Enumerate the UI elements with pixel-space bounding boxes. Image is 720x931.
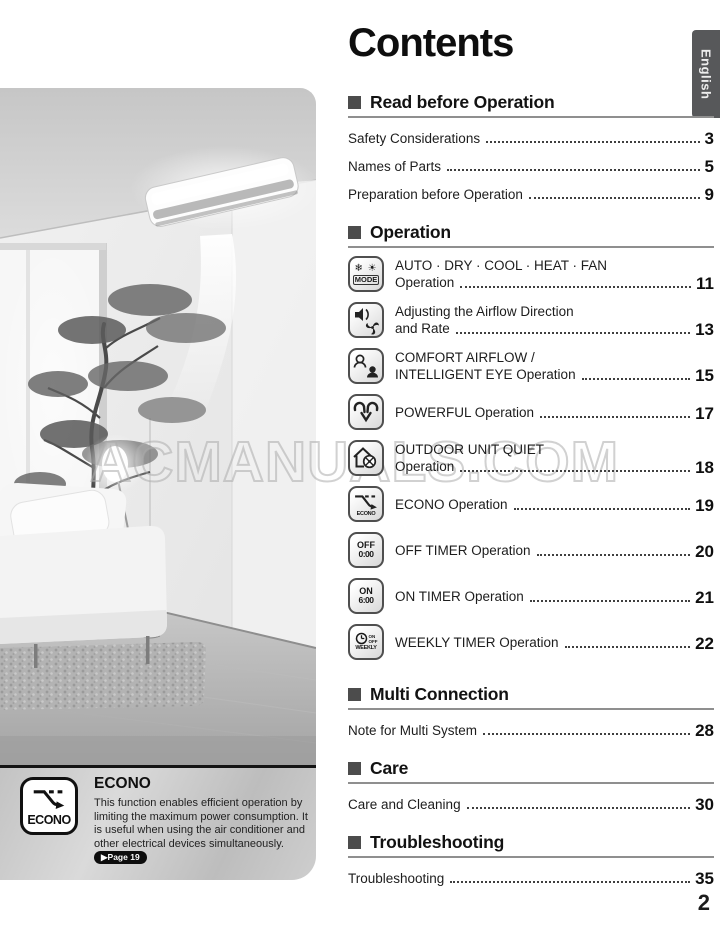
page-reference-badge[interactable]: ▶Page 19 (94, 851, 147, 864)
dot-leader (582, 378, 691, 380)
mode-icon: ❄ ☀ MODE (348, 256, 384, 292)
dot-leader (486, 141, 699, 143)
section-bullet-icon (348, 96, 361, 109)
dot-leader (450, 881, 690, 883)
comfort-eye-icon (348, 348, 384, 384)
toc-item[interactable]: ON OFF WEEKLY WEEKLY TIMER Operation22 (348, 624, 714, 660)
toc-item[interactable]: Adjusting the Airflow Direction and Rate… (348, 302, 714, 338)
section-header-care: Care (348, 758, 714, 784)
rug (0, 642, 206, 710)
table-of-contents: Contents Read before Operation Safety Co… (348, 20, 714, 916)
dot-leader (483, 733, 690, 735)
dot-leader (530, 600, 690, 602)
outdoor-quiet-icon (348, 440, 384, 476)
econo-icon-label: ECONO (27, 814, 70, 827)
section-header-read-before-operation: Read before Operation (348, 92, 714, 118)
econo-icon: ECONO (20, 777, 78, 835)
dot-leader (467, 807, 691, 809)
econo-panel-text: This function enables efficient operatio… (94, 797, 308, 850)
section-header-multi-connection: Multi Connection (348, 684, 714, 710)
powerful-icon (348, 394, 384, 430)
econo-icon: ECONO (348, 486, 384, 522)
clock-icon (355, 632, 368, 645)
toc-item[interactable]: Safety Considerations3 (348, 127, 714, 146)
toc-item[interactable]: Preparation before Operation9 (348, 183, 714, 202)
on-timer-icon: ON 6:00 (348, 578, 384, 614)
toc-item[interactable]: POWERFUL Operation17 (348, 394, 714, 430)
off-timer-icon: OFF 0:00 (348, 532, 384, 568)
toc-item[interactable]: Names of Parts5 (348, 155, 714, 174)
dot-leader (456, 332, 690, 334)
toc-item[interactable]: COMFORT AIRFLOW / INTELLIGENT EYE Operat… (348, 348, 714, 384)
weekly-timer-icon: ON OFF WEEKLY (348, 624, 384, 660)
dot-leader (447, 169, 700, 171)
section-bullet-icon (348, 762, 361, 775)
dot-leader (514, 508, 691, 510)
room-photo (0, 88, 316, 765)
section-header-troubleshooting: Troubleshooting (348, 832, 714, 858)
toc-item[interactable]: ❄ ☀ MODE AUTO · DRY · COOL · HEAT · FAN … (348, 256, 714, 292)
page-number: 2 (698, 890, 710, 916)
section-bullet-icon (348, 836, 361, 849)
toc-item[interactable]: OUTDOOR UNIT QUIET Operation18 (348, 440, 714, 476)
dot-leader (537, 554, 691, 556)
toc-item[interactable]: Troubleshooting35 (348, 867, 714, 886)
toc-item[interactable]: Note for Multi System28 (348, 719, 714, 738)
dot-leader (540, 416, 690, 418)
cover-photo-card: ECONO ECONO This function enables effici… (0, 88, 316, 880)
econo-feature-panel: ECONO ECONO This function enables effici… (0, 768, 316, 880)
toc-item[interactable]: OFF 0:00 OFF TIMER Operation20 (348, 532, 714, 568)
section-header-operation: Operation (348, 222, 714, 248)
page-title: Contents (348, 20, 714, 66)
toc-item[interactable]: ON 6:00 ON TIMER Operation21 (348, 578, 714, 614)
econo-panel-body: This function enables efficient operatio… (94, 797, 308, 865)
dot-leader (565, 646, 691, 648)
toc-item[interactable]: Care and Cleaning30 (348, 793, 714, 812)
airflow-icon (348, 302, 384, 338)
dot-leader (529, 197, 700, 199)
toc-item[interactable]: ECONO ECONO Operation19 (348, 486, 714, 522)
dot-leader (460, 470, 690, 472)
section-bullet-icon (348, 688, 361, 701)
econo-panel-title: ECONO (94, 775, 151, 793)
dot-leader (460, 286, 691, 288)
section-bullet-icon (348, 226, 361, 239)
